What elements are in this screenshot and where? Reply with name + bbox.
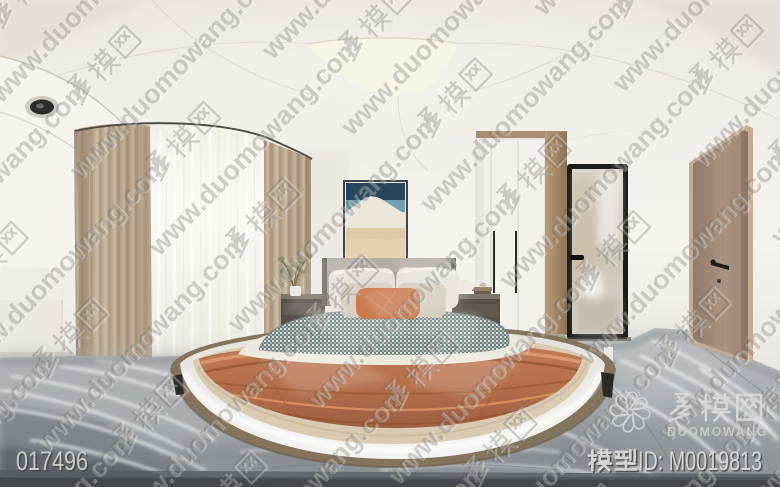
svg-text:017496: 017496 — [16, 446, 88, 476]
svg-text:DUOMOWANG: DUOMOWANG — [667, 425, 768, 439]
svg-text:ID: M0019813: ID: M0019813 — [638, 446, 762, 476]
